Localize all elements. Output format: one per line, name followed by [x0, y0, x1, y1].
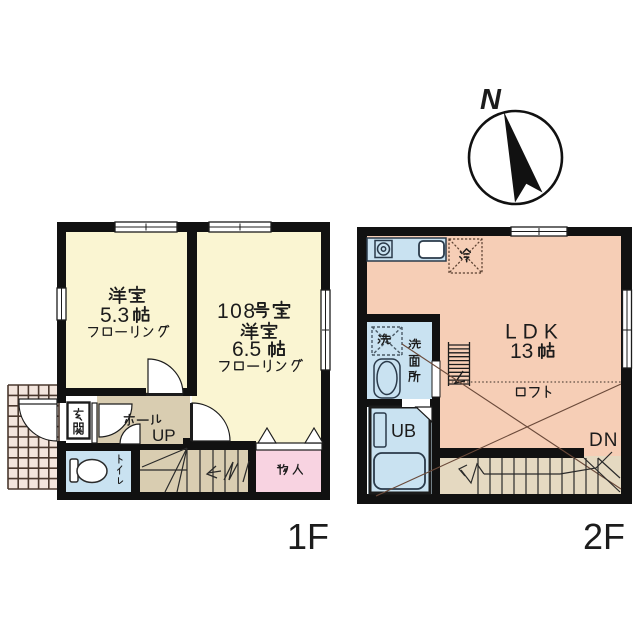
svg-text:N: N — [480, 84, 502, 116]
svg-text:1F: 1F — [287, 516, 329, 557]
svg-text:2F: 2F — [583, 516, 625, 557]
svg-text:UB: UB — [391, 421, 416, 441]
svg-text:13: 13 — [510, 340, 533, 363]
svg-text:5.3: 5.3 — [100, 304, 129, 327]
svg-text:6.5: 6.5 — [232, 338, 261, 361]
svg-text:DN: DN — [589, 430, 618, 451]
svg-text:UP: UP — [152, 426, 176, 445]
svg-text:108: 108 — [217, 300, 257, 323]
